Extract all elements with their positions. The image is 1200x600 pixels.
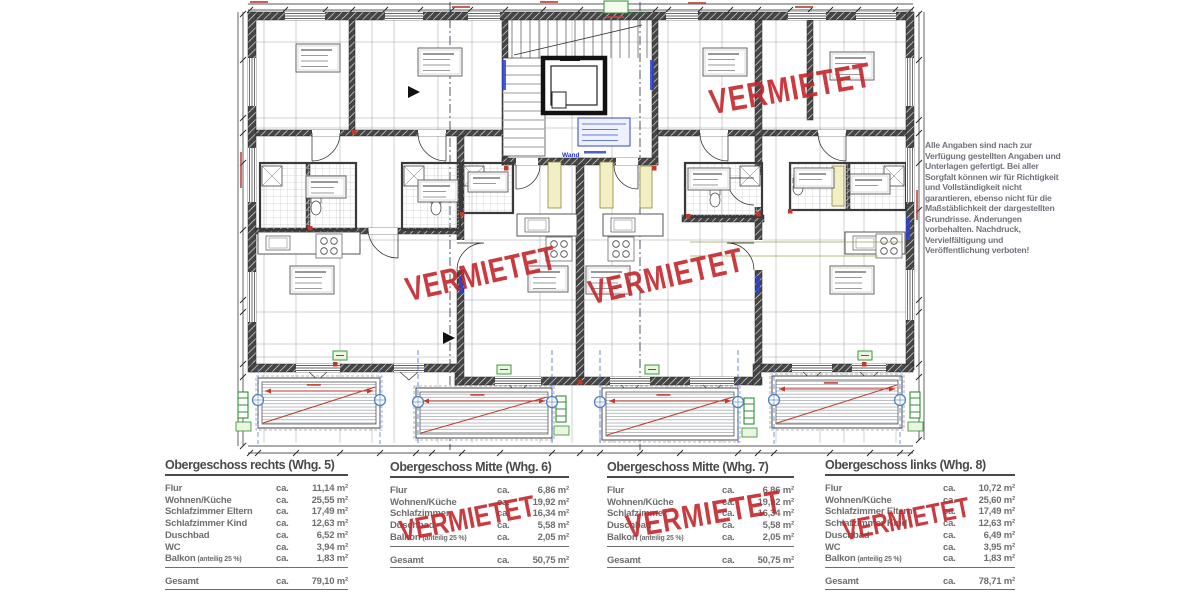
table-row: Flurca.11,14 m² [165,483,348,495]
table-title: Obergeschoss links (Whg. 8) [825,458,1015,476]
table-total-row: Gesamtca.50,75 m² [390,555,569,569]
table-row: Flurca.6,86 m² [390,485,569,497]
table-row: Wohnen/Kücheca.25,55 m² [165,495,348,507]
table-title: Obergeschoss Mitte (Whg. 6) [390,460,569,478]
disclaimer-text: Alle Angaben sind nach zur Verfügung ges… [925,140,1085,256]
table-row: Duschbadca.6,52 m² [165,530,348,542]
table-total-row: Gesamtca.79,10 m² [165,576,348,590]
table-row: Balkon(anteilig 25 %)ca.1,83 m² [165,553,348,568]
table-row: Schlafzimmer Kindca.12,63 m² [165,518,348,530]
wand-label: Wand [562,152,579,159]
table-title: Obergeschoss Mitte (Whg. 7) [607,460,794,478]
area-table-whg5: Obergeschoss rechts (Whg. 5)Flurca.11,14… [165,458,348,590]
table-row: Schlafzimmer Elternca.17,49 m² [165,506,348,518]
table-total-row: Gesamtca.78,71 m² [825,576,1015,590]
table-row: Balkon(anteilig 25 %)ca.1,83 m² [825,553,1015,568]
table-row: Flurca.10,72 m² [825,483,1015,495]
table-title: Obergeschoss rechts (Whg. 5) [165,458,348,476]
table-total-row: Gesamtca.50,75 m² [607,555,794,569]
table-row: WCca.3,94 m² [165,542,348,554]
